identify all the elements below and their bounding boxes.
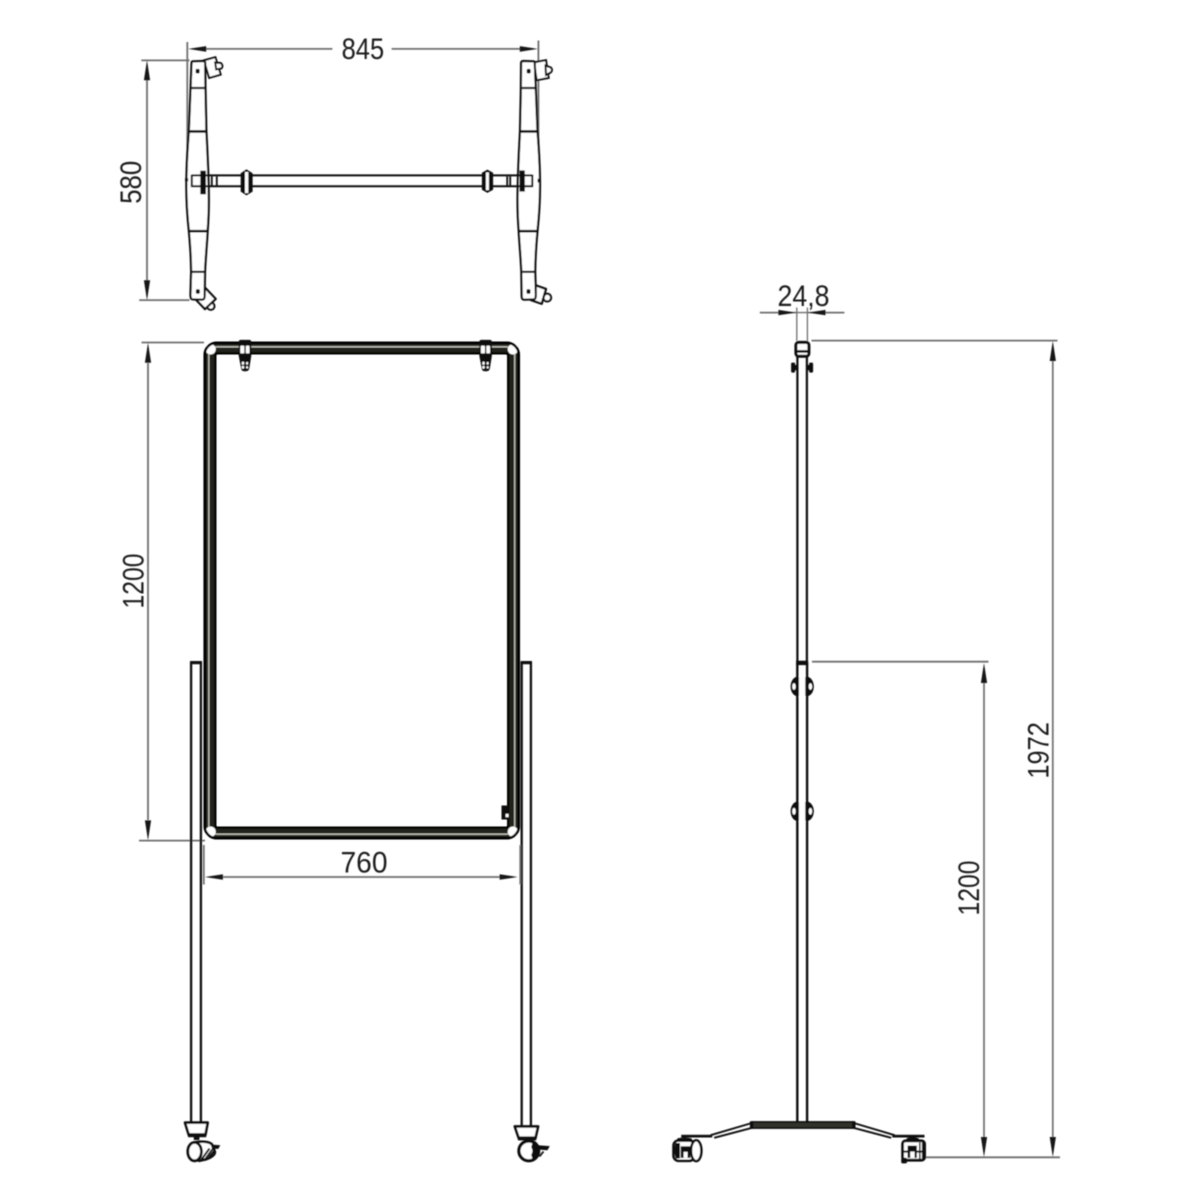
svg-text:580: 580 bbox=[115, 161, 148, 204]
svg-text:24,8: 24,8 bbox=[778, 280, 830, 313]
svg-text:1200: 1200 bbox=[118, 554, 151, 609]
svg-text:1972: 1972 bbox=[1023, 722, 1056, 779]
svg-text:1200: 1200 bbox=[953, 861, 986, 916]
svg-text:845: 845 bbox=[342, 33, 385, 66]
svg-text:760: 760 bbox=[341, 847, 388, 880]
